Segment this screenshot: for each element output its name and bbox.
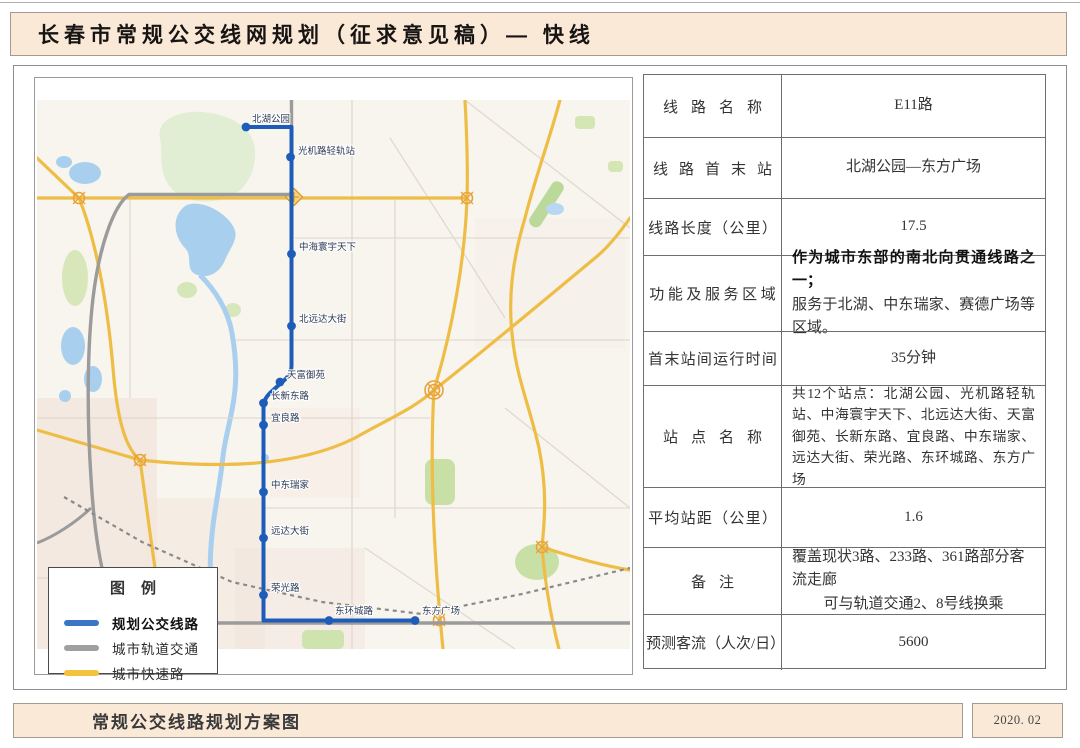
legend-item-urban-expressway: 城市快速路: [49, 660, 217, 685]
table-row: 首末站间运行时间35分钟: [644, 331, 1045, 385]
map-legend: 图例 规划公交线路城市轨道交通城市快速路: [48, 567, 218, 674]
station-label: 北远达大街: [299, 313, 347, 325]
table-row: 平均站距（公里）1.6: [644, 487, 1045, 547]
legend-title: 图例: [49, 577, 217, 598]
row-label: 首末站间运行时间: [644, 332, 782, 385]
urban-rail-swatch: [64, 645, 99, 651]
table-row: 预测客流（人次/日）5600: [644, 614, 1045, 670]
legend-label: 城市轨道交通: [112, 638, 199, 658]
footer-date: 2020. 02: [994, 713, 1042, 728]
footer-title-band: 常规公交线路规划方案图: [13, 703, 963, 738]
station-dot: [259, 421, 268, 430]
station-label: 天富御苑: [287, 369, 326, 381]
planned-bus-route-swatch: [64, 620, 99, 626]
row-label: 平均站距（公里）: [644, 488, 782, 547]
station-dot: [287, 250, 296, 259]
table-row: 站点名称共12个站点：北湖公园、光机路轻轨站、中海寰宇天下、北远达大街、天富御苑…: [644, 385, 1045, 487]
legend-label: 规划公交线路: [112, 613, 199, 633]
main-panel: 北湖公园光机路轻轨站中海寰宇天下北远达大街天富御苑长新东路宜良路中东瑞家远达大街…: [13, 65, 1067, 690]
station-label: 远达大街: [271, 525, 310, 537]
row-value: 1.6: [782, 488, 1045, 547]
table-row: 备注覆盖现状3路、233路、361路部分客流走廊可与轨道交通2、8号线换乘: [644, 547, 1045, 614]
station-label: 荣光路: [271, 582, 300, 594]
row-label: 线路长度（公里）: [644, 199, 782, 255]
header-band: 长春市常规公交线网规划（征求意见稿）— 快线: [10, 12, 1067, 56]
station-label: 东方广场: [422, 605, 460, 617]
legend-item-planned-bus-route: 规划公交线路: [49, 610, 217, 635]
table-row: 线路名称E11路: [644, 75, 1045, 137]
station-label: 光机路轻轨站: [298, 145, 356, 157]
legend-item-urban-rail: 城市轨道交通: [49, 635, 217, 660]
table-row: 功能及服务区域作为城市东部的南北向贯通线路之一；服务于北湖、中东瑞家、赛德广场等…: [644, 255, 1045, 331]
station-dot: [259, 534, 268, 543]
station-label: 长新东路: [271, 390, 310, 402]
legend-label: 城市快速路: [112, 663, 185, 683]
row-label: 线路首末站: [644, 138, 782, 198]
row-value: 5600: [782, 615, 1045, 670]
station-dot: [411, 616, 420, 625]
row-value: 35分钟: [782, 332, 1045, 385]
table-row: 线路首末站北湖公园—东方广场: [644, 137, 1045, 198]
station-dot: [259, 591, 268, 600]
page-top-rule: [0, 2, 1080, 3]
station-dot: [259, 399, 268, 408]
page-title: 长春市常规公交线网规划（征求意见稿）— 快线: [11, 19, 595, 49]
station-label: 东环城路: [335, 605, 374, 617]
station-dot: [242, 123, 251, 132]
row-label: 站点名称: [644, 386, 782, 487]
row-value: E11路: [782, 75, 1045, 137]
row-label: 备注: [644, 548, 782, 614]
station-label: 宜良路: [271, 412, 300, 424]
footer-date-band: 2020. 02: [972, 703, 1063, 738]
row-label: 预测客流（人次/日）: [644, 615, 782, 670]
station-dot: [287, 322, 296, 331]
row-value: 北湖公园—东方广场: [782, 138, 1045, 198]
station-dot: [276, 378, 285, 387]
station-label: 中东瑞家: [271, 479, 310, 491]
station-label: 北湖公园: [252, 114, 290, 125]
station-label: 中海寰宇天下: [299, 241, 356, 253]
row-value: 作为城市东部的南北向贯通线路之一；服务于北湖、中东瑞家、赛德广场等区域。: [782, 256, 1045, 331]
route-info-table: 线路名称E11路线路首末站北湖公园—东方广场线路长度（公里）17.5功能及服务区…: [643, 74, 1046, 669]
route-map: 北湖公园光机路轻轨站中海寰宇天下北远达大街天富御苑长新东路宜良路中东瑞家远达大街…: [34, 77, 633, 675]
footer-title: 常规公交线路规划方案图: [14, 708, 301, 733]
station-dot: [259, 488, 268, 497]
row-label: 功能及服务区域: [644, 256, 782, 331]
station-dot: [325, 616, 334, 625]
row-label: 线路名称: [644, 75, 782, 137]
urban-expressway-swatch: [64, 670, 99, 676]
row-value: 共12个站点：北湖公园、光机路轻轨站、中海寰宇天下、北远达大街、天富御苑、长新东…: [782, 386, 1045, 487]
row-value: 覆盖现状3路、233路、361路部分客流走廊可与轨道交通2、8号线换乘: [782, 548, 1045, 614]
station-dot: [286, 153, 295, 162]
